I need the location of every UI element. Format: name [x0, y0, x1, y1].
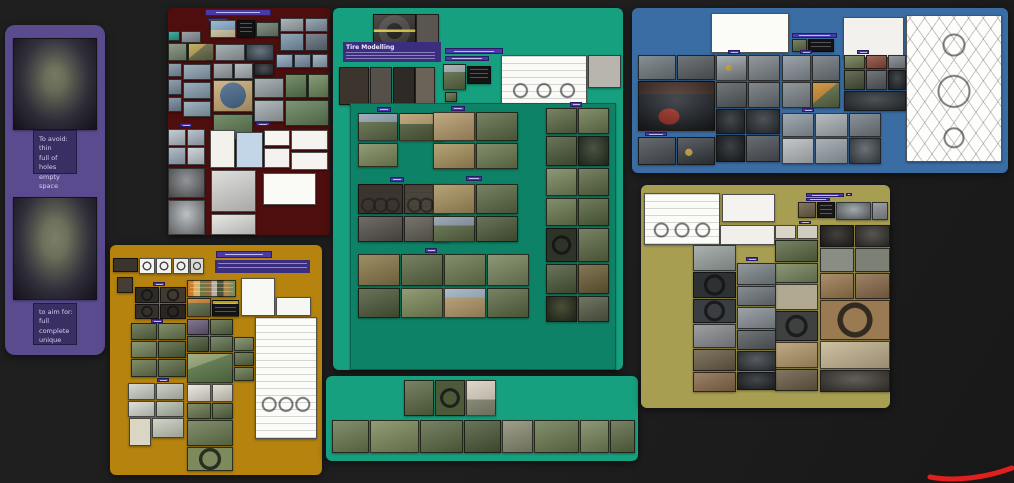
- image-tile[interactable]: [183, 82, 211, 99]
- tank-drawing[interactable]: [775, 225, 796, 239]
- group-label[interactable]: [445, 48, 503, 54]
- red-stroke-annotation[interactable]: [928, 464, 1014, 483]
- group-label[interactable]: [802, 108, 814, 112]
- decal-sheet[interactable]: [210, 130, 235, 168]
- tread-photo[interactable]: [370, 67, 392, 105]
- heli-threeview[interactable]: [906, 15, 1002, 162]
- image-tile[interactable]: [237, 20, 255, 38]
- image-tile[interactable]: [156, 383, 184, 400]
- truck-photo[interactable]: [546, 296, 577, 322]
- wheel-photo[interactable]: [693, 272, 736, 298]
- image-tile[interactable]: [280, 33, 304, 51]
- truck-photo[interactable]: [578, 108, 609, 134]
- image-tile[interactable]: [131, 341, 157, 358]
- group-label[interactable]: [846, 193, 852, 196]
- image-tile[interactable]: [131, 323, 157, 340]
- heli-photo[interactable]: [844, 55, 865, 69]
- truck-photo[interactable]: [476, 143, 518, 169]
- tread-photo[interactable]: [393, 67, 415, 105]
- truck-photo[interactable]: [578, 228, 609, 262]
- gun-photo[interactable]: [610, 420, 635, 453]
- image-tile[interactable]: [128, 383, 155, 400]
- cockpit-photo[interactable]: [168, 168, 205, 198]
- color-palette[interactable]: [187, 280, 236, 297]
- image-tile[interactable]: [256, 22, 279, 37]
- gun-photo[interactable]: [502, 420, 533, 453]
- truck-photo[interactable]: [487, 254, 529, 286]
- truck-photo[interactable]: [358, 254, 400, 286]
- heli-photo[interactable]: [716, 135, 745, 162]
- truck-photo[interactable]: [401, 254, 443, 286]
- gun-photo[interactable]: [464, 420, 501, 453]
- board-title[interactable]: [205, 9, 271, 16]
- gun-photo[interactable]: [370, 420, 419, 453]
- board-title[interactable]: [216, 251, 272, 258]
- track-photo[interactable]: [855, 248, 890, 272]
- board-characters[interactable]: To avoid: thin full of holes empty space…: [5, 25, 105, 355]
- board-jeep[interactable]: [110, 245, 322, 475]
- heli-photo[interactable]: [677, 137, 715, 165]
- wheel-photo[interactable]: [135, 287, 159, 303]
- truck-photo[interactable]: [433, 184, 475, 214]
- image-tile[interactable]: [211, 214, 256, 235]
- jeep-photo[interactable]: [210, 336, 233, 352]
- gun-photo[interactable]: [404, 380, 434, 416]
- heli-photo[interactable]: [888, 70, 906, 90]
- image-tile[interactable]: [168, 147, 186, 165]
- truck-photo[interactable]: [546, 136, 577, 166]
- heli-photo[interactable]: [746, 109, 780, 134]
- image-tile[interactable]: [305, 18, 328, 32]
- group-label[interactable]: [256, 122, 270, 126]
- image-tile[interactable]: [308, 74, 329, 98]
- truck-photo[interactable]: [546, 108, 577, 134]
- heli-photo[interactable]: [716, 109, 745, 134]
- jeep-photo[interactable]: [210, 319, 233, 335]
- image-tile[interactable]: [156, 401, 184, 417]
- image-tile[interactable]: [158, 341, 186, 358]
- jeep-sketch[interactable]: [241, 278, 275, 316]
- hangar-photo[interactable]: [638, 81, 715, 131]
- truck-photo[interactable]: [578, 136, 609, 166]
- jeep-photo[interactable]: [187, 298, 211, 317]
- truck-photo[interactable]: [578, 296, 609, 322]
- image-tile[interactable]: [213, 63, 233, 79]
- image-tile[interactable]: [168, 97, 182, 112]
- info-box[interactable]: [817, 202, 835, 218]
- note-aim[interactable]: to aim for: full complete unique: [33, 303, 77, 345]
- gun-photo[interactable]: [580, 420, 609, 453]
- gun-photo[interactable]: [332, 420, 369, 453]
- board-description[interactable]: [215, 260, 310, 273]
- wheel-photo[interactable]: [693, 299, 736, 323]
- image-tile[interactable]: [168, 63, 182, 77]
- truck-blueprint[interactable]: [588, 55, 621, 88]
- gun-photo[interactable]: [534, 420, 579, 453]
- parts-sketch[interactable]: [276, 297, 311, 316]
- sketch-sheet[interactable]: [264, 130, 290, 146]
- red-stroke-path: [930, 468, 1012, 479]
- tank-sketch[interactable]: [720, 225, 775, 245]
- decal-grid[interactable]: [236, 132, 263, 168]
- heli-photo[interactable]: [812, 82, 840, 108]
- group-label[interactable]: [746, 257, 758, 261]
- group-label[interactable]: [806, 198, 830, 201]
- board-helicopters[interactable]: [632, 8, 1008, 173]
- truck-photo[interactable]: [433, 143, 475, 169]
- group-label[interactable]: [180, 123, 192, 127]
- tire-profile[interactable]: [156, 258, 172, 274]
- image-tile[interactable]: [305, 33, 328, 51]
- tire-profile[interactable]: [190, 258, 204, 274]
- tank-photo[interactable]: [737, 307, 776, 329]
- heli-photo[interactable]: [815, 138, 848, 164]
- heli-photo[interactable]: [716, 82, 747, 108]
- truck-photo[interactable]: [476, 216, 518, 242]
- tank-photo[interactable]: [775, 369, 818, 391]
- tire-strip[interactable]: [113, 258, 138, 272]
- field-photo[interactable]: [443, 64, 466, 90]
- group-label[interactable]: [377, 107, 391, 112]
- tank-photo[interactable]: [737, 330, 776, 350]
- tank-photo[interactable]: [775, 240, 818, 262]
- truck-photo[interactable]: [476, 112, 518, 141]
- truck-photo[interactable]: [433, 216, 475, 242]
- truck-photo[interactable]: [358, 288, 400, 318]
- group-label[interactable]: [799, 221, 811, 224]
- heli-photo[interactable]: [844, 70, 865, 90]
- group-label[interactable]: [728, 50, 740, 54]
- image-tile[interactable]: [234, 367, 254, 381]
- heli-blueprint[interactable]: [711, 13, 789, 53]
- board-title-tire[interactable]: Tire Modelling: [343, 42, 441, 62]
- heli-photo[interactable]: [638, 137, 676, 165]
- image-tile[interactable]: [836, 202, 871, 220]
- board-trucks[interactable]: Tire Modelling: [333, 8, 623, 370]
- gun-photo[interactable]: [420, 420, 463, 453]
- jeep-photo[interactable]: [187, 403, 211, 419]
- image-tile[interactable]: [183, 64, 211, 80]
- truck-photo[interactable]: [358, 143, 398, 167]
- truck-photo[interactable]: [476, 184, 518, 214]
- truck-photo[interactable]: [578, 198, 609, 226]
- image-tile[interactable]: [234, 352, 254, 366]
- suspension-photo[interactable]: [820, 273, 854, 299]
- image-tile[interactable]: [152, 418, 184, 438]
- jet-sketch[interactable]: [263, 173, 316, 205]
- heli-photo[interactable]: [849, 138, 881, 164]
- tank-photo[interactable]: [693, 324, 736, 348]
- tank-photo[interactable]: [693, 372, 736, 392]
- wheel-photo[interactable]: [135, 304, 159, 319]
- heli-photo[interactable]: [812, 55, 840, 81]
- turret-photo[interactable]: [693, 245, 736, 271]
- board-aircraft[interactable]: [168, 8, 330, 235]
- group-label[interactable]: [645, 132, 667, 136]
- tire-profile[interactable]: [139, 258, 155, 274]
- heli-photo[interactable]: [782, 82, 811, 108]
- heli-photo[interactable]: [888, 55, 906, 69]
- tread-photo[interactable]: [339, 67, 369, 105]
- image-tile[interactable]: [280, 18, 304, 32]
- group-label[interactable]: [570, 102, 582, 107]
- image-tile[interactable]: [254, 63, 274, 76]
- heli-photo[interactable]: [866, 55, 887, 69]
- image-tile[interactable]: [131, 359, 157, 377]
- tire-strip[interactable]: [117, 277, 133, 293]
- truck-photo[interactable]: [546, 198, 577, 226]
- heli-photo[interactable]: [849, 113, 881, 137]
- gun-photo[interactable]: [435, 380, 465, 416]
- jeep-photo-large[interactable]: [187, 353, 233, 383]
- nose-photo[interactable]: [211, 170, 256, 212]
- truck-photo[interactable]: [401, 288, 443, 318]
- heli-photo[interactable]: [815, 113, 848, 137]
- tank-photo[interactable]: [820, 225, 854, 247]
- hull-photo[interactable]: [820, 341, 890, 369]
- heli-photo[interactable]: [782, 138, 814, 164]
- suspension-photo[interactable]: [855, 273, 890, 299]
- truck-photo[interactable]: [546, 264, 577, 294]
- board-tanks[interactable]: [641, 185, 890, 408]
- image-tile[interactable]: [246, 44, 274, 61]
- image-tile[interactable]: [187, 129, 205, 146]
- gun-photo[interactable]: [466, 380, 496, 416]
- tank-photo[interactable]: [737, 263, 776, 285]
- canvas: To avoid: thin full of holes empty space…: [0, 0, 1014, 483]
- heli-photo[interactable]: [716, 55, 747, 81]
- image-tile[interactable]: [188, 43, 214, 61]
- image-tile[interactable]: [285, 100, 329, 126]
- group-label[interactable]: [390, 177, 404, 182]
- image-tile[interactable]: [445, 92, 457, 102]
- jeep-render[interactable]: [187, 384, 211, 402]
- tank-photo[interactable]: [693, 349, 736, 371]
- image-tile-jet-pad[interactable]: [213, 80, 253, 112]
- heli-photo[interactable]: [748, 55, 780, 81]
- heli-photo[interactable]: [746, 135, 780, 162]
- note-avoid[interactable]: To avoid: thin full of holes empty space: [33, 130, 77, 174]
- info-box[interactable]: [212, 300, 239, 317]
- heli-photo[interactable]: [844, 91, 906, 111]
- wheel-photo[interactable]: [160, 304, 186, 319]
- track-photo[interactable]: [820, 248, 854, 272]
- tank-drawing[interactable]: [797, 225, 818, 239]
- truck-photo[interactable]: [358, 113, 398, 141]
- image-tile[interactable]: [187, 147, 205, 165]
- jeep-blueprint[interactable]: [255, 317, 317, 439]
- image-tile[interactable]: [234, 337, 254, 351]
- image-tile-large[interactable]: [187, 420, 233, 446]
- tank-sketch[interactable]: [722, 194, 775, 222]
- heli-photo[interactable]: [748, 82, 780, 108]
- tank-photo[interactable]: [737, 286, 776, 306]
- wheel-photo[interactable]: [775, 311, 818, 341]
- wheel-photo[interactable]: [358, 184, 403, 214]
- image-tile[interactable]: [168, 79, 182, 95]
- image-tile[interactable]: [285, 74, 307, 98]
- wheel-photo[interactable]: [358, 216, 403, 242]
- rotor-photo[interactable]: [638, 55, 676, 80]
- map-tile[interactable]: [129, 418, 151, 446]
- tank-blueprint[interactable]: [644, 193, 720, 245]
- heli-sketch[interactable]: [843, 17, 904, 58]
- truck-photo[interactable]: [487, 288, 529, 318]
- heli-photo[interactable]: [782, 113, 814, 137]
- truck-photo[interactable]: [578, 168, 609, 196]
- image-tile[interactable]: [168, 31, 180, 41]
- hull-photo[interactable]: [775, 342, 818, 368]
- image-tile[interactable]: [183, 101, 211, 117]
- image-tile[interactable]: [158, 323, 186, 340]
- group-label[interactable]: [425, 248, 437, 253]
- track-photo[interactable]: [820, 370, 890, 392]
- truck-photo[interactable]: [546, 168, 577, 196]
- group-label[interactable]: [451, 106, 465, 111]
- robot-image-1[interactable]: [13, 38, 97, 130]
- tire-profile[interactable]: [173, 258, 189, 274]
- tank-photo[interactable]: [855, 225, 890, 247]
- track-photo[interactable]: [775, 284, 818, 310]
- image-tile[interactable]: [276, 54, 293, 68]
- group-label[interactable]: [466, 176, 482, 181]
- info-box[interactable]: [467, 66, 491, 84]
- board-artillery[interactable]: [326, 376, 638, 461]
- image-tile[interactable]: [181, 31, 201, 43]
- jeep-photo[interactable]: [187, 336, 209, 352]
- image-tile[interactable]: [234, 63, 253, 79]
- tank-photo[interactable]: [775, 263, 818, 283]
- truck-photo[interactable]: [444, 288, 486, 318]
- tank-photo[interactable]: [737, 372, 776, 390]
- cockpit-photo[interactable]: [168, 200, 205, 235]
- image-tile[interactable]: [254, 100, 284, 122]
- group-label[interactable]: [153, 282, 165, 286]
- jeep-photo[interactable]: [212, 403, 233, 419]
- jeep-render[interactable]: [212, 384, 233, 402]
- wheel-photo[interactable]: [160, 287, 186, 303]
- truck-photo[interactable]: [433, 112, 475, 141]
- wheel-photo-large[interactable]: [820, 300, 890, 340]
- truck-photo[interactable]: [444, 254, 486, 286]
- tread-photo[interactable]: [415, 67, 435, 105]
- jeep-photo[interactable]: [187, 319, 209, 335]
- image-tile[interactable]: [872, 202, 888, 220]
- rotor-photo[interactable]: [677, 55, 715, 80]
- group-label[interactable]: [792, 33, 837, 38]
- robot-image-2[interactable]: [13, 197, 97, 300]
- truck-photo[interactable]: [578, 264, 609, 294]
- board-title[interactable]: [806, 193, 844, 197]
- group-label[interactable]: [857, 50, 869, 54]
- sketch-sheet[interactable]: [291, 130, 328, 150]
- image-tile[interactable]: [158, 359, 186, 377]
- heli-photo[interactable]: [866, 70, 887, 90]
- image-tile[interactable]: [254, 78, 284, 98]
- sketch-sheet[interactable]: [264, 148, 290, 168]
- image-tile[interactable]: [215, 44, 245, 61]
- image-tile[interactable]: [168, 129, 186, 146]
- heli-photo[interactable]: [782, 55, 811, 81]
- group-label[interactable]: [445, 56, 489, 61]
- image-tile[interactable]: [128, 401, 155, 417]
- truck-photo[interactable]: [546, 228, 577, 262]
- sketch-sheet[interactable]: [291, 152, 328, 170]
- group-label[interactable]: [800, 50, 812, 54]
- tank-photo[interactable]: [737, 351, 776, 371]
- image-tile[interactable]: [294, 54, 311, 68]
- image-tile[interactable]: [210, 20, 236, 38]
- group-label[interactable]: [157, 378, 169, 382]
- truck-blueprint[interactable]: [501, 55, 587, 105]
- image-tile-large[interactable]: [187, 447, 233, 471]
- image-tile[interactable]: [168, 43, 187, 61]
- image-tile[interactable]: [798, 202, 816, 218]
- image-tile[interactable]: [312, 54, 328, 68]
